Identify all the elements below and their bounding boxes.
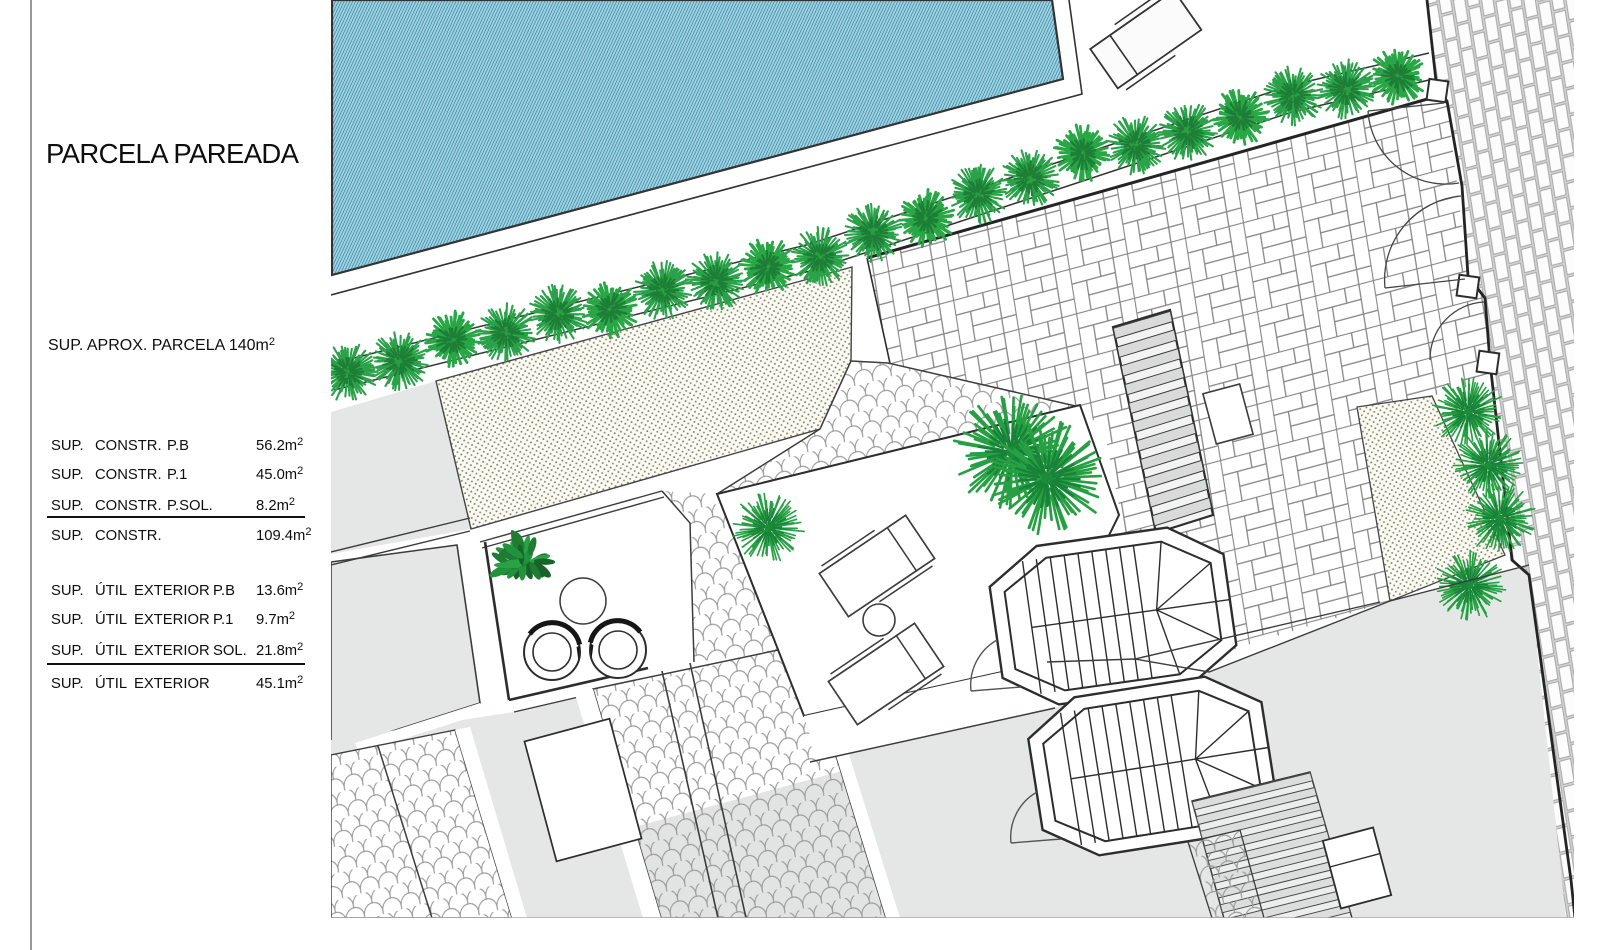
svg-text:SUP.: SUP.: [51, 528, 84, 544]
svg-text:CONSTR.: CONSTR.: [95, 498, 162, 514]
svg-text:SUP.: SUP.: [51, 438, 84, 454]
svg-text:EXTERIOR: EXTERIOR: [134, 643, 210, 659]
svg-text:P.1: P.1: [167, 467, 187, 483]
svg-text:13.6m2: 13.6m2: [256, 581, 303, 599]
svg-text:56.2m2: 56.2m2: [256, 436, 303, 454]
svg-text:CONSTR.: CONSTR.: [95, 467, 162, 483]
svg-text:SUP.: SUP.: [51, 583, 84, 599]
svg-text:EXTERIOR: EXTERIOR: [134, 612, 210, 628]
svg-text:CONSTR.: CONSTR.: [95, 528, 162, 544]
svg-text:EXTERIOR: EXTERIOR: [134, 583, 210, 599]
svg-text:CONSTR.: CONSTR.: [95, 438, 162, 454]
svg-text:SUP.: SUP.: [51, 612, 84, 628]
svg-text:SUP. APROX. PARCELA 140m2: SUP. APROX. PARCELA 140m2: [48, 336, 275, 354]
svg-text:ÚTIL: ÚTIL: [95, 582, 127, 599]
svg-text:P.SOL.: P.SOL.: [167, 498, 213, 514]
svg-text:PARCELA PAREADA: PARCELA PAREADA: [46, 138, 300, 169]
svg-text:P.1: P.1: [213, 612, 233, 628]
svg-text:21.8m2: 21.8m2: [256, 641, 303, 659]
svg-text:8.2m2: 8.2m2: [256, 496, 295, 514]
svg-text:45.1m2: 45.1m2: [256, 674, 303, 692]
svg-text:EXTERIOR: EXTERIOR: [134, 676, 210, 692]
svg-text:45.0m2: 45.0m2: [256, 465, 303, 483]
svg-text:ÚTIL: ÚTIL: [95, 675, 127, 692]
svg-text:P.B: P.B: [167, 438, 189, 454]
svg-text:ÚTIL: ÚTIL: [95, 642, 127, 659]
svg-text:P.B: P.B: [213, 583, 235, 599]
svg-text:SOL.: SOL.: [213, 643, 247, 659]
svg-text:109.4m2: 109.4m2: [256, 526, 311, 544]
svg-text:9.7m2: 9.7m2: [256, 610, 295, 628]
svg-text:SUP.: SUP.: [51, 467, 84, 483]
svg-text:SUP.: SUP.: [51, 676, 84, 692]
svg-text:ÚTIL: ÚTIL: [95, 611, 127, 628]
svg-text:SUP.: SUP.: [51, 498, 84, 514]
svg-text:SUP.: SUP.: [51, 643, 84, 659]
